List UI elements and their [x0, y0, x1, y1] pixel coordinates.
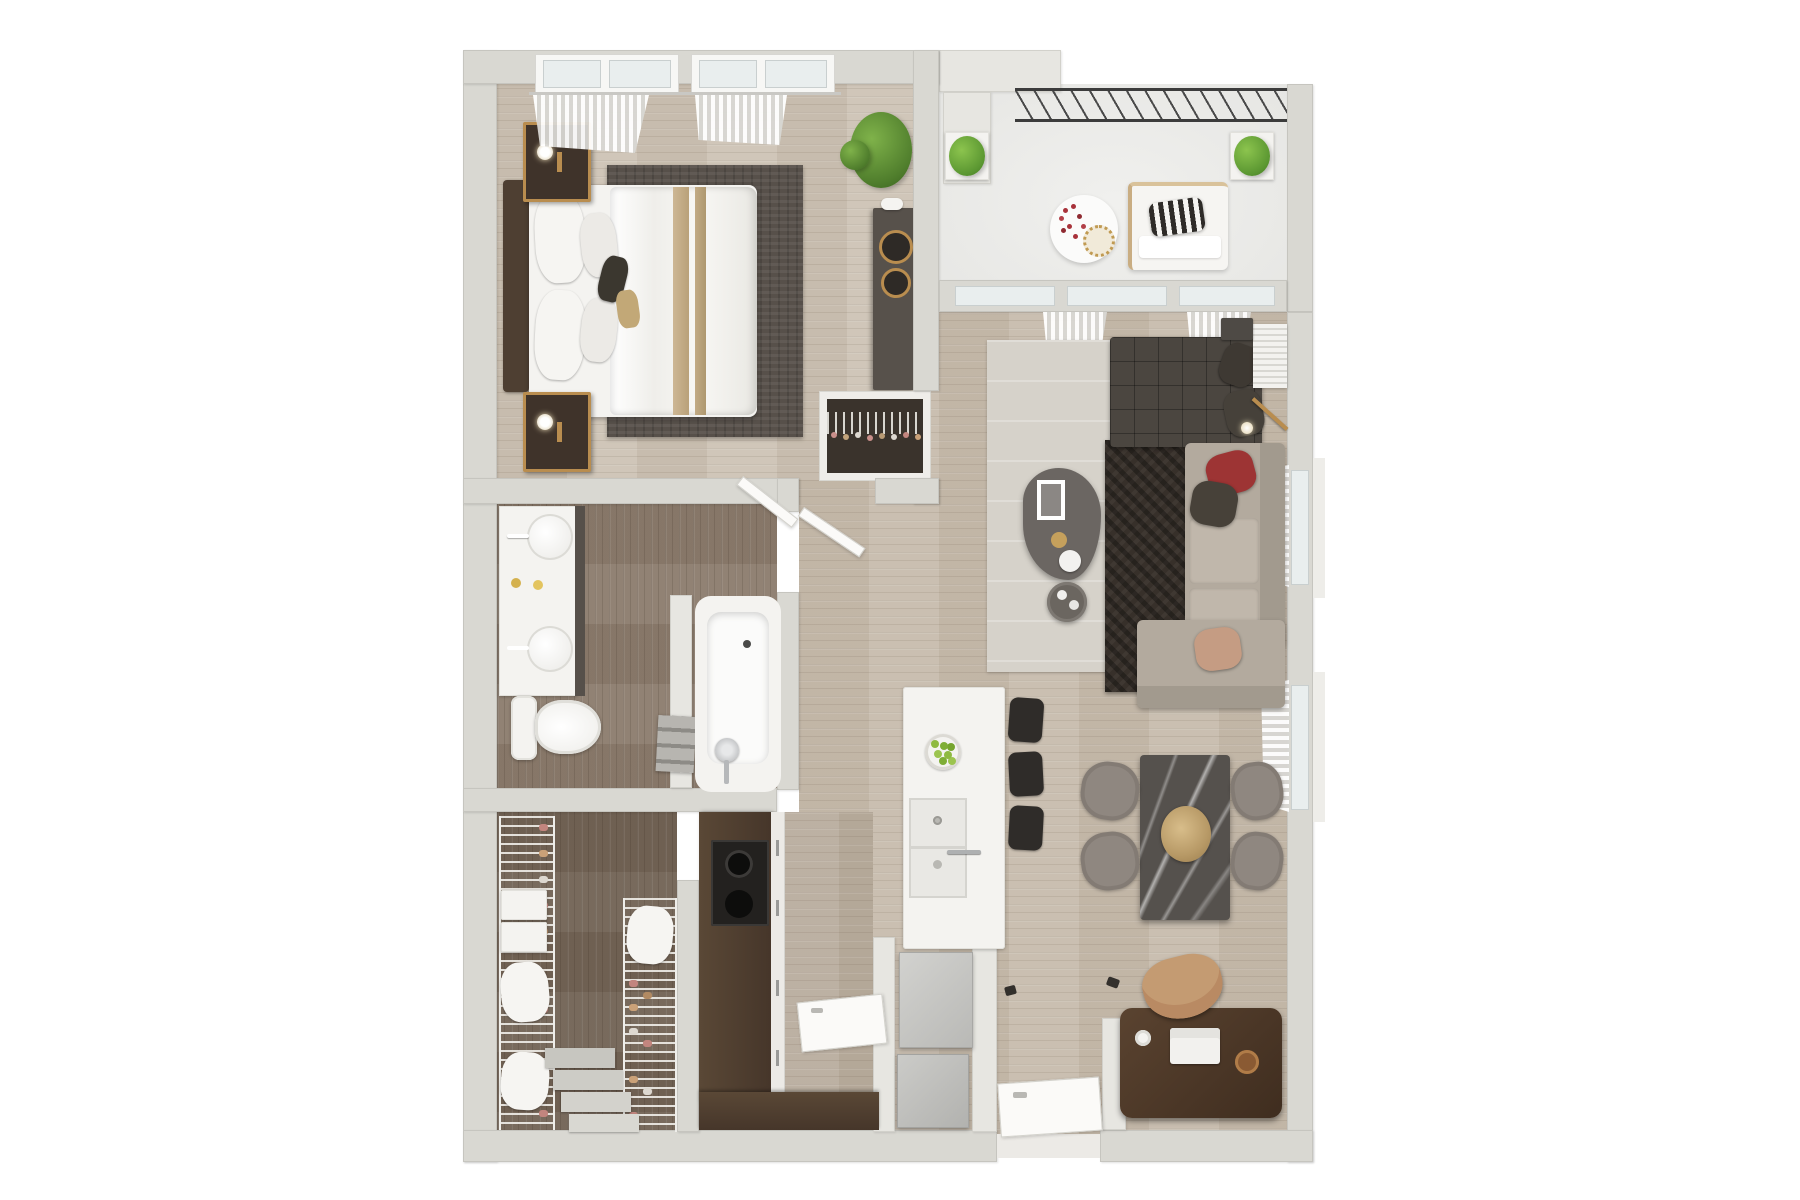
nightstand-item: [557, 152, 562, 172]
closet-cushion: [498, 960, 551, 1024]
wall-balcony-right: [1287, 84, 1313, 312]
nightstand-lamp: [537, 414, 553, 430]
green-apples: [931, 740, 939, 748]
dresser-brass-tray: [881, 268, 911, 298]
washer: [897, 1054, 969, 1128]
closet-shoes: [629, 980, 638, 987]
wall-closet-kitchen-divider: [677, 880, 699, 1132]
window-glass: [699, 60, 757, 88]
toilet-bowl: [535, 700, 601, 754]
dresser-dish: [881, 198, 903, 210]
bedroom-closet-interior: [827, 399, 923, 473]
gold-soap-dish: [511, 578, 521, 588]
bed-pillow: [533, 192, 588, 284]
dining-centerpiece-flowers: [1161, 806, 1211, 862]
floor-lamp-shade: [1241, 422, 1253, 434]
window-glass: [1291, 685, 1309, 810]
bed-headboard: [503, 180, 529, 392]
tub-faucet: [715, 738, 739, 762]
desk-laptop: [1170, 1028, 1220, 1064]
bathtub-basin: [707, 612, 769, 764]
window-glass: [543, 60, 601, 88]
coffee-table-candle: [1059, 550, 1081, 572]
slatted-side-table: [1253, 324, 1287, 388]
table-flowers: [1063, 208, 1068, 213]
closet-cushion: [499, 1050, 551, 1111]
bedroom-curtain: [533, 95, 649, 153]
balcony-plant: [1234, 136, 1270, 176]
sofa-backrest: [1260, 443, 1285, 648]
kitchen-counter-return: [699, 1092, 879, 1130]
closet-clothes: [831, 432, 837, 438]
vanity-edge: [575, 506, 585, 696]
window-glass: [1179, 286, 1275, 306]
island-faucet: [947, 850, 981, 854]
side-tray-cups: [1057, 590, 1067, 600]
refrigerator: [899, 952, 973, 1048]
shoe-step: [561, 1092, 631, 1112]
coffee-table-photo-tray: [1037, 480, 1065, 520]
bedroom-plant-leaf: [840, 140, 870, 170]
shoe-step: [545, 1048, 615, 1068]
side-tray-table: [1047, 582, 1087, 622]
entry-threshold: [997, 1134, 1100, 1158]
closet-shoes: [539, 824, 548, 831]
wall-exterior-bottom: [463, 1130, 997, 1162]
shoe-step: [569, 1114, 639, 1132]
closet-hanger-rod: [827, 412, 923, 434]
wall-exterior-left: [463, 50, 497, 1162]
window-glass: [955, 286, 1055, 306]
toilet-tank: [511, 696, 537, 760]
coffee-table-gold-candle: [1051, 532, 1067, 548]
kitchen-door-leaf: [797, 994, 888, 1053]
vanity-sink: [527, 514, 573, 560]
wall-appliance-alcove-right: [972, 937, 997, 1132]
bar-stool: [1008, 751, 1044, 797]
sink-faucet: [507, 534, 529, 538]
shoe-step: [553, 1070, 623, 1090]
tub-drain: [743, 640, 751, 648]
window-glass: [765, 60, 827, 88]
closet-storage-box: [501, 890, 547, 920]
door-handle: [1013, 1092, 1027, 1098]
window-glass: [609, 60, 671, 88]
media-console-item: [1221, 318, 1253, 340]
window-glass: [1291, 470, 1309, 585]
floor-plan: 3D rendered one-bedroom apartment floor …: [395, 40, 1320, 1165]
island-sink-divider: [909, 846, 967, 849]
balcony-plant: [949, 136, 985, 176]
cabinet-handle: [776, 840, 779, 856]
entry-door-leaf: [997, 1077, 1103, 1138]
vanity-sink: [527, 626, 573, 672]
desk-cup: [1135, 1030, 1151, 1046]
wall-bedroom-bottom: [875, 478, 939, 504]
tub-faucet-stem: [724, 760, 729, 784]
curtain-rod: [529, 92, 841, 95]
bed-throw-stripe: [673, 187, 689, 415]
apple-bowl: [925, 734, 961, 770]
sofa-bottom-backrest: [1137, 686, 1285, 708]
bar-stool: [1008, 805, 1044, 851]
bar-stool: [1008, 697, 1045, 743]
desk-gold-tray: [1235, 1050, 1259, 1074]
bench-seat-line: [1139, 236, 1221, 258]
window-sill: [1313, 672, 1325, 822]
balcony-wall-top: [939, 50, 1061, 92]
window-glass: [1067, 286, 1167, 306]
door-handle: [811, 1008, 823, 1013]
bed-throw-stripe: [695, 187, 706, 415]
closet-storage-box: [501, 922, 547, 952]
balcony-railing: [1015, 88, 1287, 122]
wall-exterior-bottom: [1100, 1130, 1313, 1162]
stove-burner: [725, 850, 753, 878]
towel-shelf: [656, 715, 697, 773]
sofa-cushion: [1189, 518, 1259, 584]
nightstand-item: [557, 422, 562, 442]
dresser-brass-tray: [879, 230, 913, 264]
bedroom-curtain: [695, 95, 787, 145]
sink-drain: [933, 816, 942, 825]
wall-bedroom-right: [913, 50, 939, 391]
window-sill: [1313, 458, 1325, 598]
table-gold-plate: [1083, 225, 1115, 257]
